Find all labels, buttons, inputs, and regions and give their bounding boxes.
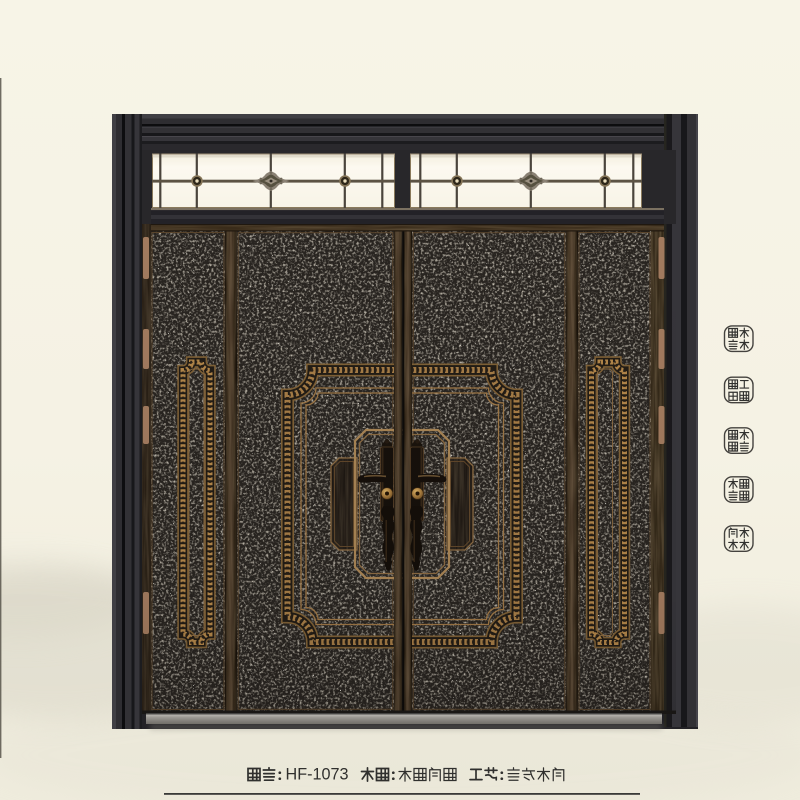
svg-text:HF-1073: HF-1073 (286, 765, 349, 783)
